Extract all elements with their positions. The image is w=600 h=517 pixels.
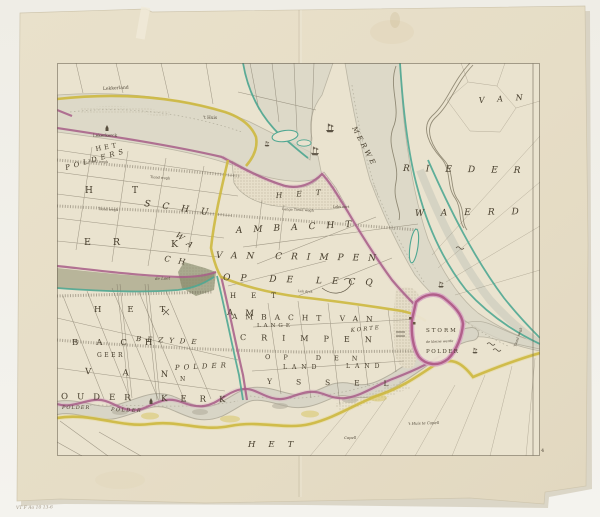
label-lekdyk: Lek dyck xyxy=(298,289,313,294)
label-de-loet: de Loet xyxy=(155,275,171,281)
house-icon xyxy=(413,322,416,325)
folio-mark: 4 xyxy=(541,448,544,454)
label-capell: Capell xyxy=(344,435,357,440)
label-storm: STORM xyxy=(426,328,458,334)
label-w-geer: GEER xyxy=(97,352,125,359)
label-polder-it1: POLDER xyxy=(61,405,90,411)
label-polder-it2: POLDER xyxy=(110,407,142,414)
label-ouder: OUDER xyxy=(61,392,140,403)
label-kerk: KERK xyxy=(161,394,238,405)
label-w-am: AM xyxy=(226,308,266,319)
label-s-het: HET xyxy=(247,440,306,450)
inventory-inscription: VT F Ao 10 13-6 xyxy=(16,504,53,511)
label-c-het2: HET xyxy=(230,292,291,300)
label-storm-polder: POLDER xyxy=(426,349,459,355)
label-land1: LAND xyxy=(283,364,321,371)
label-nw-k: K xyxy=(171,239,179,250)
label-w-het: HET xyxy=(94,305,191,315)
label-nw-t: T xyxy=(132,186,138,196)
label-lange: LANGE xyxy=(257,323,293,329)
map-canvas: Lekkerland Lekerkerck 't Huis HET POLDER… xyxy=(0,0,600,517)
label-leks-oort: Leks oort xyxy=(333,205,350,209)
label-land2: LAND xyxy=(346,363,384,370)
label-nw-er: ER xyxy=(84,237,142,248)
label-lekerkerck: Lekerkerck xyxy=(93,133,118,138)
label-thuis: 't Huis xyxy=(203,115,217,120)
label-nw-h: H xyxy=(85,186,93,196)
label-w-n: N xyxy=(180,376,185,383)
label-waerd: WAERD xyxy=(415,207,536,219)
scanned-map-photo: Lekkerland Lekerkerck 't Huis HET POLDER… xyxy=(0,0,600,517)
house-icon xyxy=(409,317,412,320)
